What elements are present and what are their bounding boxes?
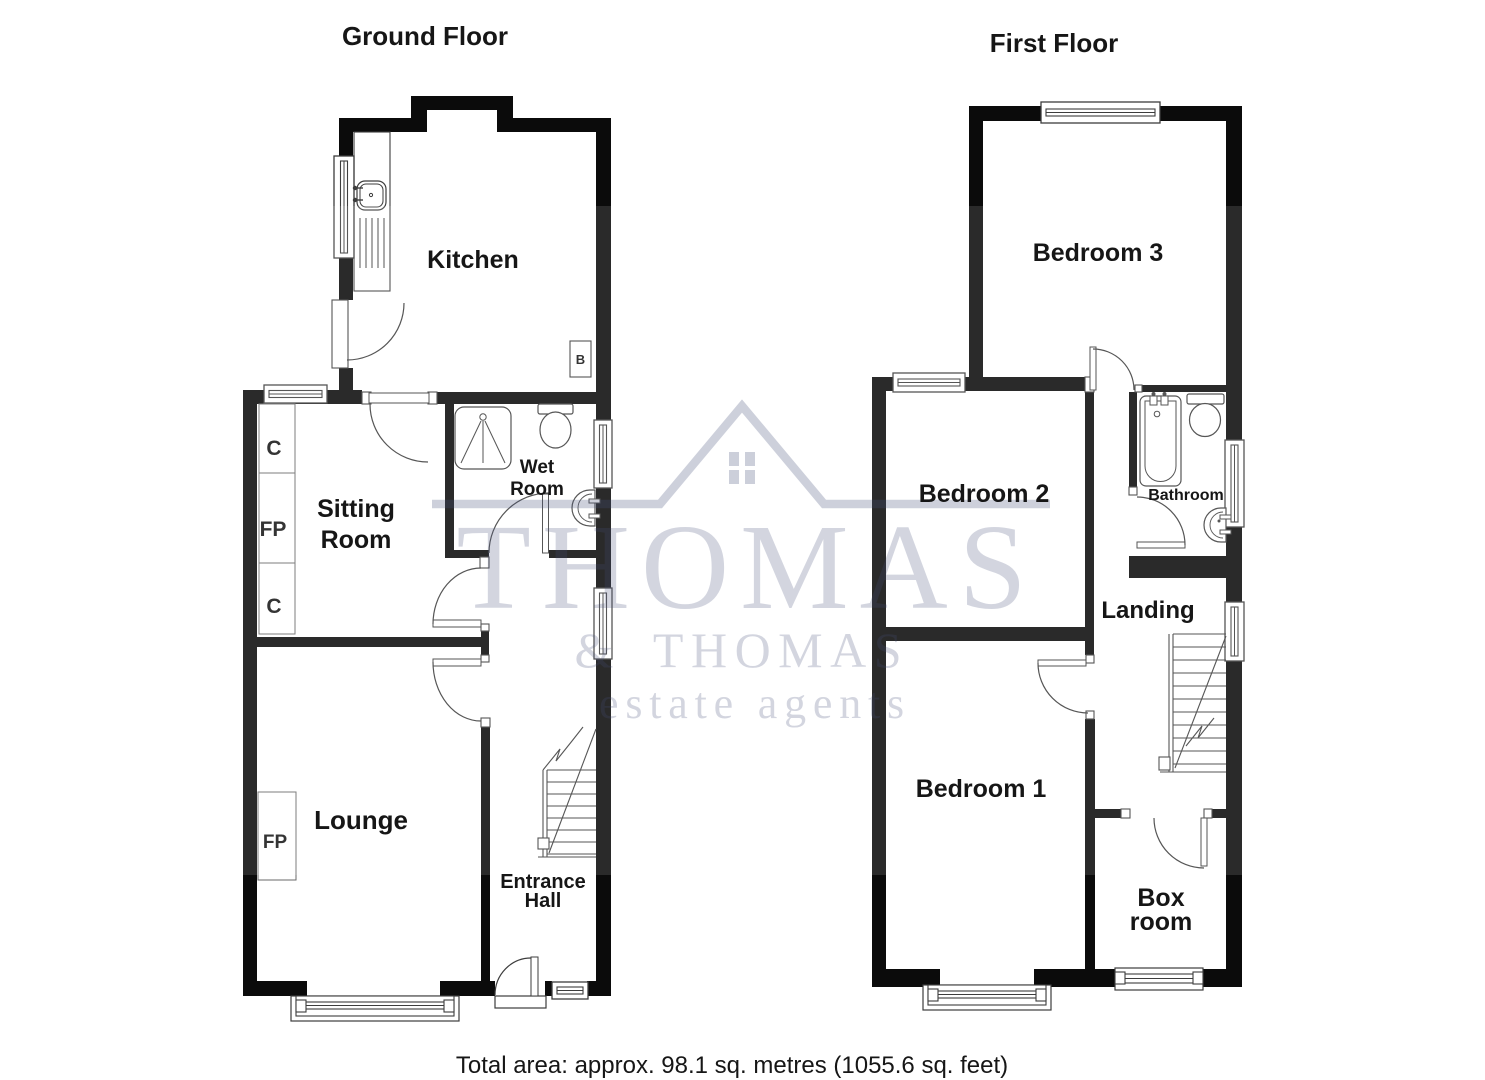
svg-text:Kitchen: Kitchen	[427, 246, 519, 274]
svg-text:Bedroom 2: Bedroom 2	[919, 480, 1050, 508]
svg-text:THOMAS: THOMAS	[456, 500, 1037, 635]
svg-text:THOMAS: THOMAS	[653, 622, 909, 678]
svg-text:Ground Floor: Ground Floor	[342, 21, 508, 51]
svg-text:&: &	[575, 622, 614, 678]
svg-text:Room: Room	[321, 526, 392, 554]
svg-text:Total area: approx. 98.1 sq. m: Total area: approx. 98.1 sq. metres (105…	[456, 1052, 1008, 1079]
svg-text:Landing: Landing	[1101, 597, 1194, 624]
svg-text:estate agents: estate agents	[599, 679, 911, 728]
svg-text:Room: Room	[510, 479, 564, 500]
svg-text:First Floor: First Floor	[990, 28, 1119, 58]
svg-text:Sitting: Sitting	[317, 495, 395, 523]
svg-text:Lounge: Lounge	[314, 805, 408, 835]
svg-text:Hall: Hall	[525, 890, 562, 912]
svg-text:Wet: Wet	[520, 457, 555, 478]
svg-text:Bathroom: Bathroom	[1148, 487, 1224, 504]
svg-text:room: room	[1130, 908, 1193, 936]
svg-text:Bedroom 3: Bedroom 3	[1033, 239, 1164, 267]
svg-text:Bedroom 1: Bedroom 1	[916, 775, 1047, 803]
